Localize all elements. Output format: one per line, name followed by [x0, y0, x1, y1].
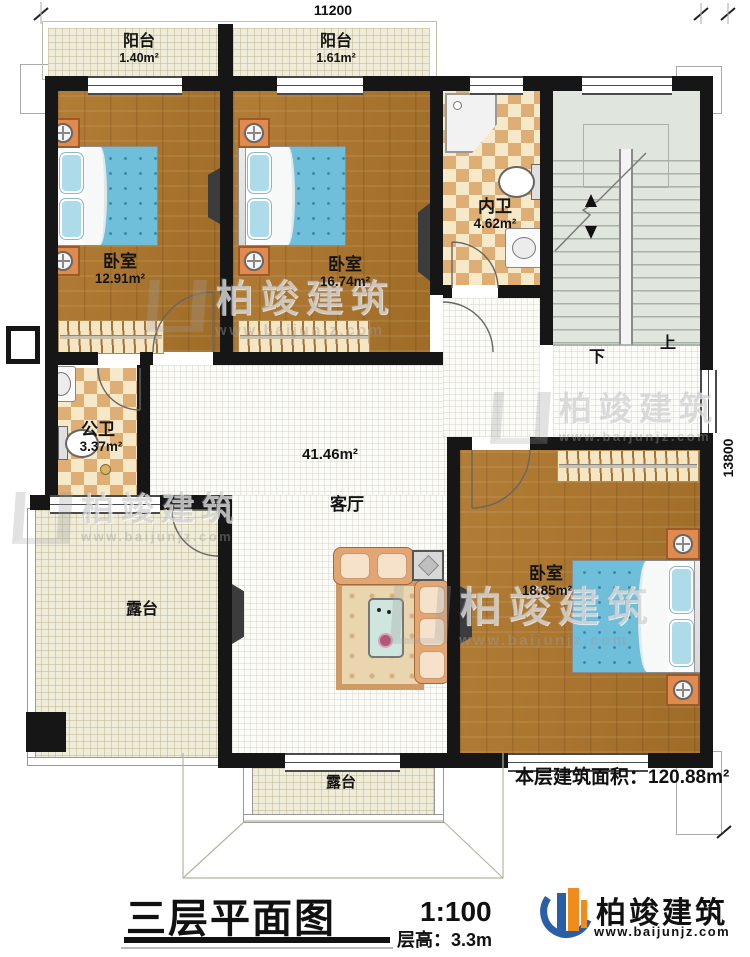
dimension-right: 13800: [720, 430, 736, 486]
wall-segment: [400, 753, 508, 768]
nightstand: [238, 118, 270, 148]
pillow: [60, 153, 83, 194]
sofa-cushion: [419, 618, 445, 646]
floor-area-note: 本层建筑面积：120.88m²: [515, 762, 729, 789]
room-area-bedroom2: 16.74m²: [320, 275, 370, 289]
wall-segment: [45, 352, 98, 365]
tv: [232, 584, 244, 644]
bed: [50, 146, 158, 246]
living-floor: [150, 365, 447, 495]
stair-rail: [619, 149, 633, 345]
bed: [238, 146, 346, 246]
bed-pillows: [246, 147, 272, 245]
floor-area-label: 本层建筑面积：: [515, 767, 648, 788]
wall-segment: [700, 433, 713, 755]
wall-segment: [160, 495, 218, 510]
wardrobe: [238, 320, 370, 354]
wall-segment: [430, 91, 443, 295]
table-decor: [387, 610, 391, 614]
window: [470, 76, 523, 95]
sofa-cushion: [419, 586, 445, 614]
room-label-terrace-left: 露台: [126, 602, 158, 619]
window: [277, 76, 363, 95]
pillow: [60, 199, 83, 240]
pillow: [670, 567, 693, 613]
wall-segment: [182, 76, 233, 91]
wall-segment: [30, 495, 50, 510]
wardrobe: [557, 450, 699, 482]
wall-segment: [460, 437, 472, 450]
shower-head-icon: [453, 101, 462, 110]
nightstand: [238, 246, 270, 276]
tv: [460, 586, 472, 644]
pillow: [248, 199, 271, 240]
flue-box: [6, 326, 40, 364]
floor-plan: 柏竣建筑 www.baijunjz.com 柏竣建筑 www.baijunjz.…: [0, 0, 750, 957]
room-area-balcony1: 1.40m²: [119, 52, 159, 65]
plan-scale: 1:100: [420, 896, 492, 928]
floor-area-value: 120.88m²: [648, 767, 729, 788]
stair-up-label: 上: [660, 336, 676, 353]
lamp-icon: [244, 123, 264, 143]
window: [582, 76, 672, 95]
room-area-public-bath: 3.37m²: [80, 440, 123, 454]
window: [285, 753, 400, 772]
bed-mattress: [573, 561, 668, 672]
hall-floor: [443, 298, 540, 437]
lamp-icon: [673, 680, 693, 700]
window: [88, 76, 182, 95]
bed-pillows: [668, 561, 694, 672]
room-area-bedroom1: 12.91m²: [95, 272, 145, 286]
window: [50, 495, 160, 514]
toilet-bowl: [498, 166, 535, 198]
plan-title: 三层平面图: [126, 886, 336, 944]
wall-segment: [430, 76, 470, 91]
staircase: [553, 91, 700, 345]
wall-segment: [363, 76, 430, 91]
bed-mattress: [84, 147, 157, 245]
sofa: [333, 547, 414, 585]
tv: [418, 203, 430, 281]
sink-basin: [512, 237, 536, 259]
wall-segment: [540, 91, 553, 345]
stair-down-label: 下: [589, 350, 605, 367]
wall-segment: [218, 753, 285, 768]
bed: [572, 560, 702, 673]
room-area-inner-bath: 4.62m²: [474, 217, 517, 231]
wall-segment: [140, 352, 153, 365]
brand-logo-icon: [538, 884, 592, 946]
wall-segment: [498, 285, 540, 298]
floor-height-label: 层高：: [397, 930, 451, 950]
side-table: [412, 550, 444, 581]
room-area-living: 41.46m²: [302, 447, 358, 463]
sofa-cushion: [340, 553, 370, 579]
lamp-icon: [244, 251, 264, 271]
bed-pillows: [58, 147, 84, 245]
wall-segment: [218, 495, 232, 755]
sofa-cushion: [377, 553, 407, 579]
bed-sheet-fold: [272, 147, 295, 245]
wall-segment: [220, 91, 233, 365]
room-area-balcony2: 1.61m²: [316, 52, 356, 65]
room-label-public-bath: 公卫: [81, 421, 115, 439]
wall-segment: [233, 76, 277, 91]
nightstand: [666, 528, 700, 560]
wall-segment: [447, 437, 460, 753]
floor-height-note: 层高：3.3m: [397, 926, 492, 952]
coffee-table: [368, 598, 404, 658]
terrace-corner-pier: [26, 712, 66, 752]
wall-segment: [672, 76, 713, 91]
floor-drain-icon: [100, 464, 111, 475]
brand-url: www.baijunjz.com: [594, 924, 730, 939]
side-table-top: [417, 555, 438, 576]
wall-segment: [523, 76, 582, 91]
floor-height-value: 3.3m: [451, 930, 492, 950]
balcony-divider-wall: [218, 24, 233, 76]
hall-floor: [553, 345, 700, 437]
bed-sheet-fold: [84, 147, 107, 245]
lamp-icon: [673, 534, 693, 554]
bed-mattress: [272, 147, 345, 245]
wall-segment: [233, 352, 443, 365]
room-label-bedroom2: 卧室: [328, 256, 362, 274]
wall-segment: [45, 76, 88, 91]
sofa: [414, 580, 450, 684]
table-decor: [377, 608, 381, 612]
pillow: [248, 153, 271, 194]
room-label-inner-bath: 内卫: [478, 198, 512, 216]
wall-segment: [213, 352, 233, 365]
wall-segment: [137, 365, 150, 498]
room-area-bedroom3: 18.85m²: [522, 584, 572, 598]
window: [700, 370, 717, 433]
room-label-terrace-bottom: 露台: [326, 775, 356, 791]
wall-segment: [700, 91, 713, 370]
sofa-cushion: [419, 651, 445, 679]
room-label-bedroom1: 卧室: [103, 253, 137, 271]
terrace-wall: [27, 757, 220, 766]
wall-segment: [530, 437, 702, 450]
sink: [505, 228, 542, 268]
bed-headboard: [239, 147, 246, 245]
terrace-wall: [243, 814, 444, 823]
room-label-balcony2: 阳台: [320, 34, 352, 51]
tv: [208, 168, 220, 224]
room-label-living: 客厅: [330, 496, 364, 514]
nightstand: [666, 674, 700, 706]
room-label-balcony1: 阳台: [123, 34, 155, 51]
wall-segment: [443, 285, 452, 298]
title-underline-shadow: [121, 947, 393, 949]
wardrobe: [58, 320, 164, 354]
bed-sheet-fold: [638, 561, 668, 672]
flower-icon: [378, 633, 393, 648]
wall-segment: [45, 91, 58, 510]
dimension-top: 11200: [314, 2, 352, 18]
room-label-bedroom3: 卧室: [529, 565, 563, 583]
pillow: [670, 620, 693, 666]
